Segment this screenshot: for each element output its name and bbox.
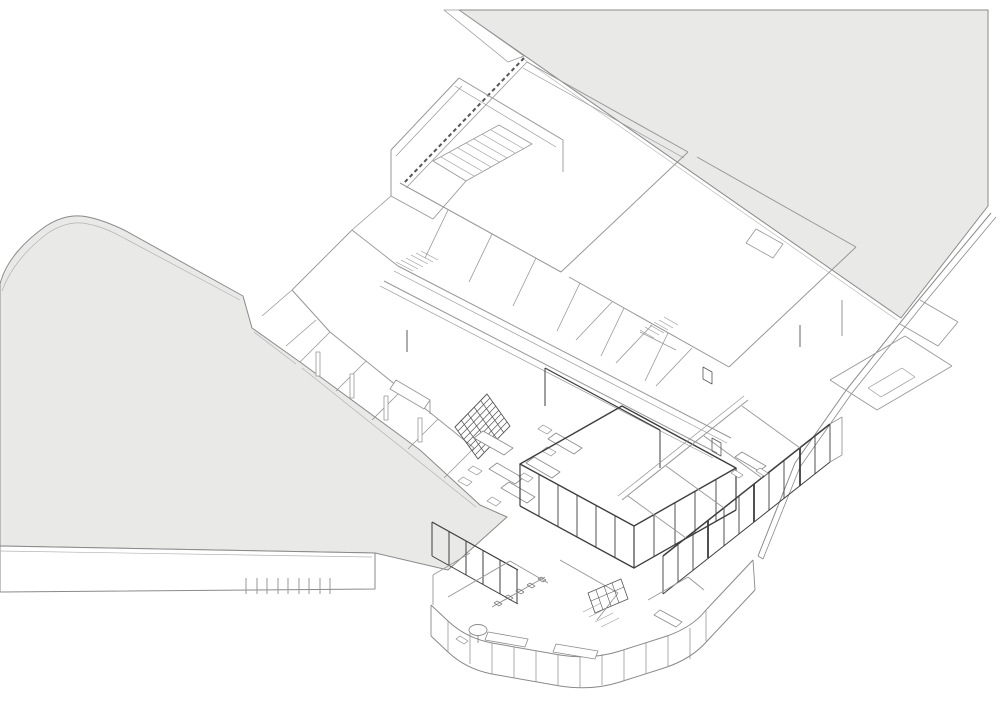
wing-partition [628, 496, 686, 538]
wing-chair [731, 470, 743, 478]
pavilion-stair-tread [589, 608, 607, 617]
pavilion-corner [753, 560, 755, 590]
hall-column [350, 374, 354, 398]
stair-tread [482, 134, 515, 153]
west-cell-divider [300, 332, 330, 362]
axonometric-line-drawing-svg [0, 0, 1000, 707]
pavilion-wall [448, 561, 510, 597]
terrain-plane [0, 216, 507, 570]
east-room-wall [830, 380, 877, 410]
terrain-fascia [0, 546, 375, 592]
east-room-parapet [868, 368, 902, 388]
hall-wall [561, 152, 688, 272]
pavilion-top-rail [431, 560, 753, 657]
stair-tread [441, 157, 474, 176]
pavilion-wall [688, 577, 704, 590]
reading-chair [468, 466, 482, 475]
freestanding-wall [390, 380, 430, 409]
pavilion-stair-grid [596, 590, 603, 610]
pavilion-wall [560, 560, 618, 593]
mid-divider [656, 348, 692, 386]
round-table-chair [456, 636, 468, 644]
pavilion-stair-grid [604, 586, 611, 606]
clerestory-glazing [403, 58, 524, 184]
ramp-tread [406, 258, 423, 267]
atrium-bottom-rail [520, 506, 736, 568]
reading-chair [487, 497, 501, 506]
west-cell-divider [408, 419, 438, 449]
stair-room [433, 125, 532, 181]
mid-divider [576, 302, 612, 340]
pavilion-wall [648, 577, 688, 600]
stair-block-wall [391, 196, 433, 219]
mid-divider [616, 325, 652, 363]
wing-partition [742, 406, 800, 448]
wing-cap [830, 455, 842, 462]
bookshelf-mullion [461, 402, 493, 435]
west-connector-wall [352, 196, 391, 230]
stair-tread [466, 143, 499, 162]
hall-column [316, 352, 320, 376]
wing-back-wall [622, 400, 748, 500]
stair-block-wall [433, 181, 466, 219]
ramp-tread [416, 253, 433, 262]
roof-corner-room [938, 322, 958, 346]
east-room-parapet [902, 368, 915, 377]
corridor-wall-n2 [394, 271, 727, 443]
pavilion-desk [485, 632, 528, 647]
hall2-wall [729, 247, 856, 367]
pavilion-stair-tread [595, 613, 613, 622]
stair-tread [458, 148, 491, 167]
west-cell-divider [286, 320, 316, 346]
roof-corner-room [900, 324, 938, 346]
pavilion-wall [510, 561, 548, 583]
stair-tread [491, 130, 524, 149]
stair-block-wall [455, 86, 556, 147]
clerestory-wall [406, 62, 527, 188]
site-wall-cap [758, 556, 763, 559]
reading-chair [458, 477, 472, 486]
roof-plane [459, 10, 988, 318]
stair-block-wall [396, 86, 462, 156]
cell-divider [513, 258, 536, 306]
west-cell-divider [444, 448, 474, 478]
wing-cap [830, 417, 842, 424]
east-room-parapet [868, 388, 881, 397]
roof-notch [746, 229, 783, 258]
west-cell-divider [262, 290, 292, 316]
axonometric-floor-plan-drawing [0, 0, 1000, 707]
cell-divider [557, 283, 580, 331]
stair-block-wall [391, 78, 459, 150]
corridor-wall-n [398, 266, 731, 438]
reading-table [489, 463, 523, 484]
reading-table [526, 457, 560, 478]
wing-facade-rail [663, 424, 830, 556]
east-room-wall [877, 366, 952, 410]
corridor-wall-s [384, 281, 717, 453]
pavilion-stair-tread [601, 618, 619, 627]
stair-tread [474, 139, 507, 158]
atrium-lantern [545, 368, 660, 430]
pavilion-bottom-rail [431, 590, 755, 688]
wing-back-wall-2 [618, 396, 744, 496]
east-room-parapet [881, 377, 915, 397]
cell-divider [469, 234, 492, 282]
stair-tread [449, 152, 482, 171]
reading-chair [542, 447, 556, 456]
west-cells-inner-wall [292, 290, 330, 332]
cell-divider [425, 210, 448, 258]
pavilion-stair-rail [588, 579, 628, 613]
pavilion-stair-grid [591, 587, 624, 601]
bookshelf-mullion [458, 398, 490, 431]
mid-shelf [703, 367, 712, 384]
hall-column [418, 418, 422, 442]
cell-divider [601, 308, 624, 356]
ramp-tread [421, 251, 438, 260]
pavilion-table [654, 610, 682, 627]
west-connector-wall [352, 230, 398, 266]
roof-corner-room [920, 300, 958, 322]
reading-chair [519, 473, 533, 482]
west-connector-wall [292, 230, 352, 290]
round-table [469, 625, 487, 636]
ramp-tread [401, 260, 418, 269]
reading-table [501, 482, 535, 503]
reading-chair [538, 425, 552, 434]
hall-column [384, 396, 388, 420]
